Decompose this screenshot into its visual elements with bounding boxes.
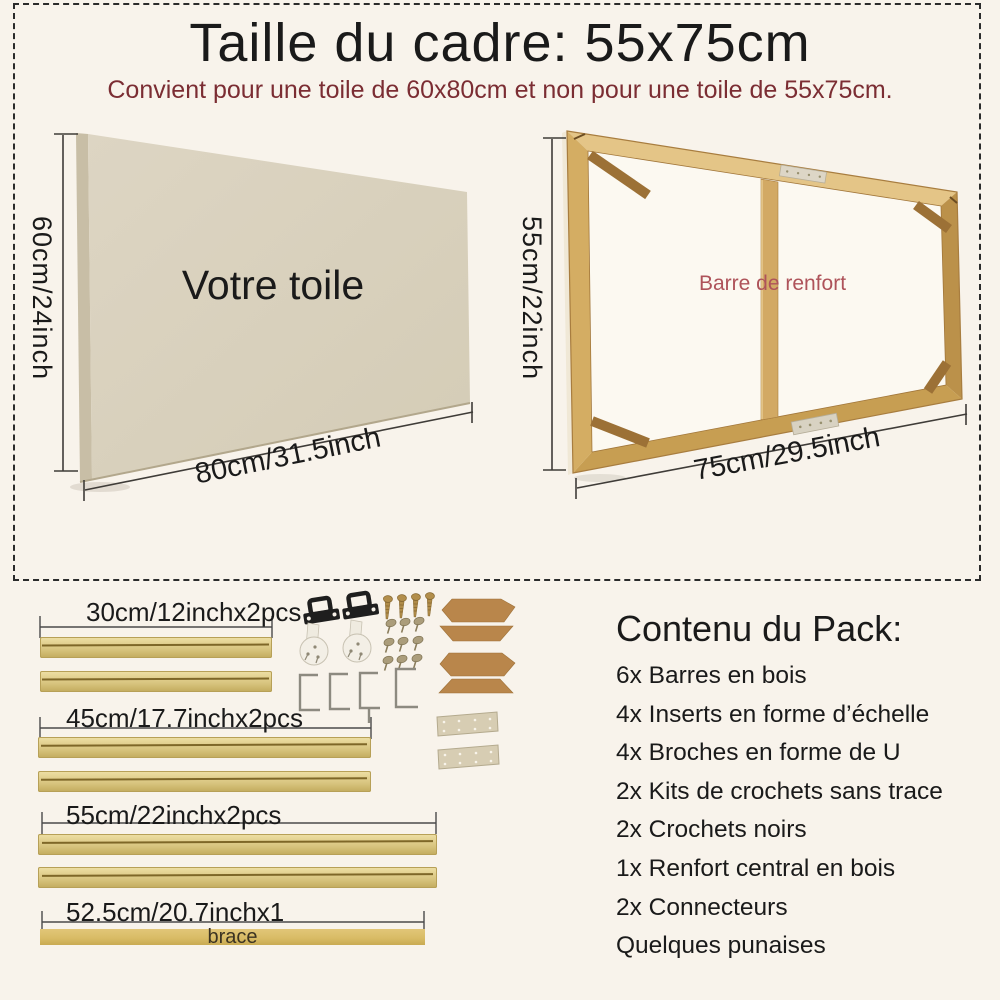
page-title: Taille du cadre: 55x75cm <box>0 12 1000 74</box>
bar-group-label: 30cm/12inchx2pcs <box>86 597 301 628</box>
pushpin-icon <box>381 616 427 671</box>
pack-item: 4x Broches en forme de U <box>616 734 943 773</box>
pack-item: 2x Connecteurs <box>616 889 943 928</box>
canvas-label: Votre toile <box>138 262 408 309</box>
screw-icon <box>424 592 435 616</box>
wood-bar <box>38 771 371 792</box>
pack-item: 2x Crochets noirs <box>616 811 943 850</box>
screw-icon <box>410 593 421 617</box>
pack-item: 4x Inserts en forme d’échelle <box>616 696 943 735</box>
no-trace-hook-icon <box>300 623 328 665</box>
pack-item: Quelques punaises <box>616 927 943 966</box>
screw-icon <box>396 594 407 618</box>
ladder-insert-icon <box>439 599 515 693</box>
pack-item: 2x Kits de crochets sans trace <box>616 773 943 812</box>
canvas-height-label: 60cm/24inch <box>26 216 57 396</box>
black-hook-icon <box>340 591 379 619</box>
bar-group-label: 45cm/17.7inchx2pcs <box>66 703 303 734</box>
wood-bar <box>38 867 437 888</box>
bar-group-label: 55cm/22inchx2pcs <box>66 800 281 831</box>
bar-group-label: 52.5cm/20.7inchx1 <box>66 897 284 928</box>
u-pin-icon <box>300 669 418 723</box>
pack-contents-title: Contenu du Pack: <box>616 608 902 650</box>
page-subtitle: Convient pour une toile de 60x80cm et no… <box>0 76 1000 105</box>
pack-item: 6x Barres en bois <box>616 657 943 696</box>
wood-bar <box>40 671 272 692</box>
black-hook-icon <box>301 596 340 624</box>
frame-height-label: 55cm/22inch <box>516 216 547 396</box>
center-brace-label: Barre de renfort <box>690 272 855 296</box>
no-trace-hook-icon <box>343 620 371 662</box>
frame-kit-infographic: Taille du cadre: 55x75cm Convient pour u… <box>0 0 1000 1000</box>
pack-item: 1x Renfort central en bois <box>616 850 943 889</box>
pack-contents-list: 6x Barres en bois 4x Inserts en forme d’… <box>616 657 943 966</box>
brace-bar: brace <box>40 929 425 945</box>
screw-icon <box>382 595 393 619</box>
wood-bar <box>38 737 371 758</box>
connector-plate-icon <box>437 712 499 769</box>
wood-bar <box>40 637 272 658</box>
wood-bar <box>38 834 437 855</box>
